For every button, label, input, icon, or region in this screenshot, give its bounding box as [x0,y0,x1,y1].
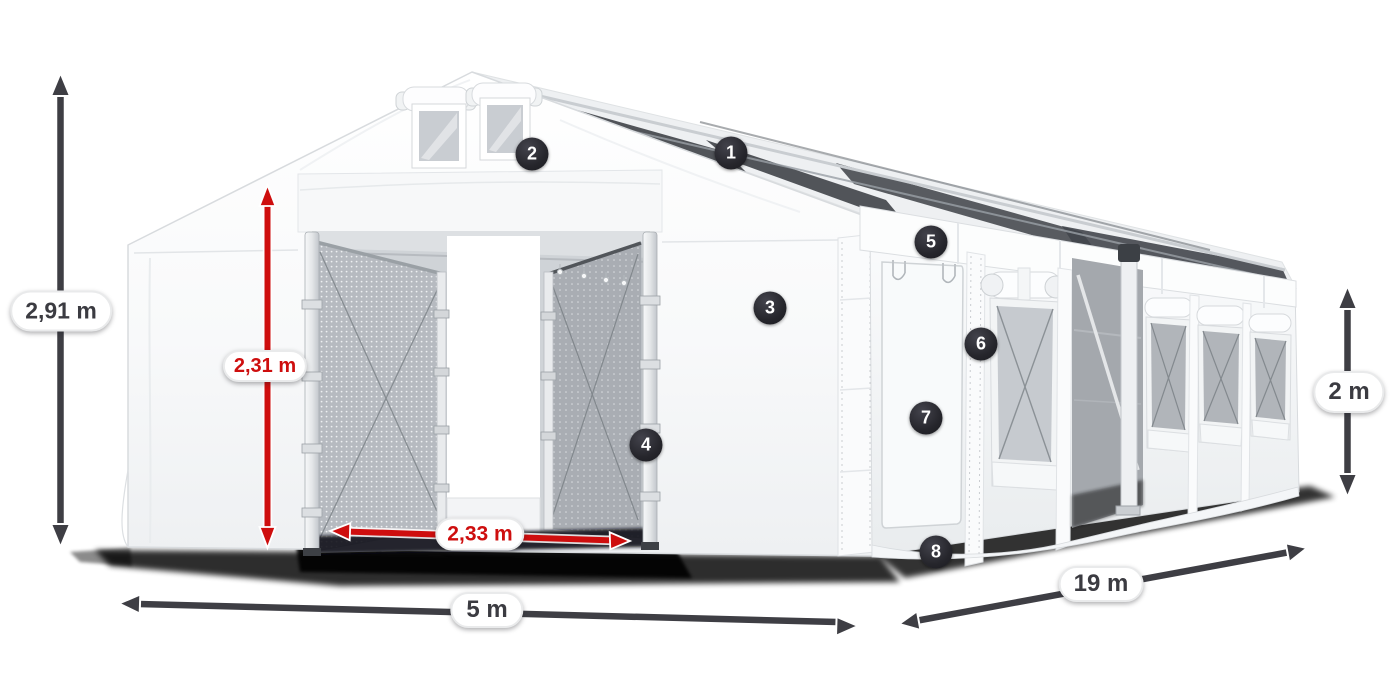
tent-diagram: 2,91 m 2,31 m 2,33 m 5 m 19 m 2 m 1 2 3 … [0,0,1400,700]
callout-6-side-window[interactable]: 6 [965,328,998,361]
side-window-1 [981,268,1067,490]
doorway-header-band [298,170,662,232]
side-strap-2 [1056,268,1072,550]
front-doorway [302,231,660,556]
callout-7-side-door[interactable]: 7 [910,402,943,435]
dimension-label-door-height: 2,31 m [223,350,307,382]
doorway-see-through-gap [447,236,540,540]
dimension-label-door-width: 2,33 m [435,518,524,551]
side-strap-4 [1241,303,1251,511]
side-strap-1 [965,252,985,566]
dimension-label-wall-height: 2 m [1313,371,1384,413]
side-strap-3 [1188,295,1199,521]
callout-5-valance[interactable]: 5 [915,226,948,259]
mesh-door-right [541,243,641,538]
side-door-panel [882,260,963,528]
callout-1-roof[interactable]: 1 [715,137,748,170]
open-side-bay [1072,244,1143,528]
tent-illustration [0,0,1400,700]
dimension-label-total-height: 2,91 m [10,291,112,332]
mesh-door-left [316,242,449,551]
callout-2-gable-vent[interactable]: 2 [516,138,549,171]
dimension-label-side-length: 19 m [1059,566,1144,602]
callout-4-door-frame[interactable]: 4 [630,429,663,462]
side-window-2 [1145,298,1192,452]
dimension-label-front-width: 5 m [450,592,523,628]
callout-8-ground-skirt[interactable]: 8 [920,536,953,569]
callout-3-front-wall[interactable]: 3 [754,292,787,325]
